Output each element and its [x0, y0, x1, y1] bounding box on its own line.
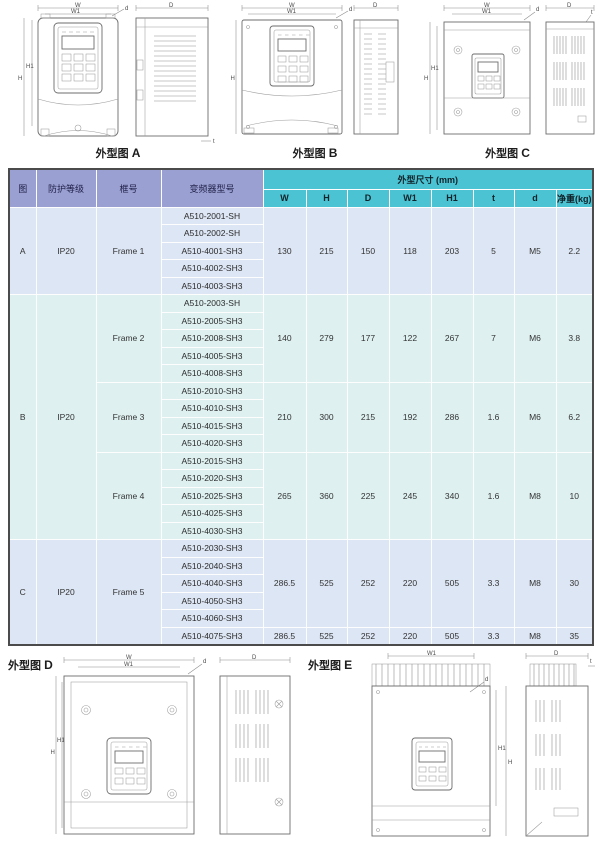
dim-value-cell-kg: 10: [556, 452, 593, 540]
dim-value-cell-kg: 3.8: [556, 295, 593, 383]
model-cell: A510-4030-SH3: [161, 522, 263, 540]
dim-value-cell-kg: 30: [556, 540, 593, 628]
dim-label-w1: W1: [124, 662, 134, 668]
dim-label-depth: D: [169, 3, 174, 9]
col-header-frame: 框号: [96, 169, 161, 207]
dim-value-cell-H: 525: [306, 540, 347, 628]
dim-label-w1: W1: [482, 9, 492, 15]
model-cell: A510-4040-SH3: [161, 575, 263, 593]
keypad: [412, 738, 452, 790]
dim-value-cell-D: 150: [347, 207, 389, 295]
model-cell: A510-4025-SH3: [161, 505, 263, 523]
frame-cell: Frame 5: [96, 540, 161, 645]
spec-table-header: 图 防护等级 框号 变频器型号 外型尺寸 (mm) W H D W1 H1 t …: [9, 169, 593, 207]
col-header-protection: 防护等级: [36, 169, 96, 207]
dim-value-cell-d: M6: [514, 295, 556, 383]
drawing-c-front-view: W W1 H H1 d: [424, 3, 539, 134]
drawing-caption-d: 外型图 D: [8, 657, 53, 673]
keypad: [270, 26, 314, 86]
page-root: { "drawings": { "caption_prefix": "外型图",…: [0, 0, 600, 844]
col-header-w1: W1: [389, 189, 431, 207]
dim-value-cell-W: 140: [263, 295, 306, 383]
dim-value-cell-H1: 267: [431, 295, 473, 383]
figure-cell: A: [9, 207, 36, 295]
dim-label-w1: W1: [427, 651, 437, 657]
figure-cell: B: [9, 295, 36, 540]
dim-value-cell-kg: 6.2: [556, 382, 593, 452]
model-cell: A510-4075-SH3: [161, 627, 263, 645]
protection-cell: IP20: [36, 295, 96, 540]
model-cell: A510-2005-SH3: [161, 312, 263, 330]
model-cell: A510-2040-SH3: [161, 557, 263, 575]
dim-value-cell-W1: 192: [389, 382, 431, 452]
outline-drawing-a: W W1 H H1 d D t: [8, 2, 228, 145]
model-cell: A510-2010-SH3: [161, 382, 263, 400]
keypad: [472, 54, 504, 98]
model-cell: A510-4001-SH3: [161, 242, 263, 260]
frame-cell: Frame 1: [96, 207, 161, 295]
model-cell: A510-4015-SH3: [161, 417, 263, 435]
dim-value-cell-H1: 505: [431, 627, 473, 645]
model-cell: A510-2015-SH3: [161, 452, 263, 470]
dim-value-cell-d: M6: [514, 382, 556, 452]
dim-label-depth: D: [554, 651, 559, 657]
col-header-model: 变频器型号: [161, 169, 263, 207]
frame-cell: Frame 2: [96, 295, 161, 383]
frame-cell: Frame 3: [96, 382, 161, 452]
dim-value-cell-H: 360: [306, 452, 347, 540]
drawing-caption-b: 外型图 B: [230, 145, 400, 161]
dim-value-cell-H1: 203: [431, 207, 473, 295]
dim-value-cell-H1: 505: [431, 540, 473, 628]
dim-value-cell-H1: 340: [431, 452, 473, 540]
model-cell: A510-2008-SH3: [161, 330, 263, 348]
outline-drawing-e: W1 d H1 H D t: [358, 650, 598, 842]
col-header-d: D: [347, 189, 389, 207]
model-cell: A510-4008-SH3: [161, 365, 263, 383]
drawing-d-side-view: D: [220, 655, 290, 834]
dim-label-hole: d: [485, 677, 488, 683]
outline-drawing-c: W W1 H H1 d D t: [420, 2, 595, 145]
dim-value-cell-W1: 122: [389, 295, 431, 383]
col-header-dimensions-group: 外型尺寸 (mm): [263, 169, 593, 189]
dim-value-cell-H1: 286: [431, 382, 473, 452]
drawing-b-side-view: D: [354, 3, 398, 134]
col-header-h: H: [306, 189, 347, 207]
spec-table: 图 防护等级 框号 变频器型号 外型尺寸 (mm) W H D W1 H1 t …: [8, 168, 594, 646]
dim-label-h: H: [51, 750, 55, 756]
keypad: [107, 738, 151, 794]
dim-value-cell-W1: 118: [389, 207, 431, 295]
dim-value-cell-W: 130: [263, 207, 306, 295]
dim-value-cell-t: 1.6: [473, 452, 514, 540]
dim-value-cell-W1: 220: [389, 540, 431, 628]
protection-cell: IP20: [36, 207, 96, 295]
drawing-caption-a: 外型图 A: [8, 145, 228, 161]
dim-label-h1: H1: [26, 64, 34, 70]
dim-value-cell-D: 225: [347, 452, 389, 540]
dim-value-cell-D: 252: [347, 627, 389, 645]
outline-drawing-b: W W1 H d D: [230, 2, 400, 145]
dim-value-cell-t: 7: [473, 295, 514, 383]
frame-cell: Frame 4: [96, 452, 161, 540]
dim-value-cell-H: 525: [306, 627, 347, 645]
dim-value-cell-W1: 245: [389, 452, 431, 540]
col-header-figure: 图: [9, 169, 36, 207]
model-cell: A510-2003-SH: [161, 295, 263, 313]
dim-label-t: t: [591, 10, 593, 16]
dim-label-depth: D: [567, 3, 572, 9]
drawing-b-front-view: W W1 H d: [231, 3, 353, 134]
drawing-e-front-view: W1 d H1 H: [372, 651, 512, 836]
col-header-w: W: [263, 189, 306, 207]
dim-value-cell-W1: 220: [389, 627, 431, 645]
model-cell: A510-4005-SH3: [161, 347, 263, 365]
model-cell: A510-4050-SH3: [161, 592, 263, 610]
col-header-weight: 净重(kg): [556, 189, 593, 207]
dim-value-cell-d: M8: [514, 540, 556, 628]
dim-value-cell-d: M8: [514, 452, 556, 540]
dim-value-cell-H: 215: [306, 207, 347, 295]
dim-value-cell-D: 177: [347, 295, 389, 383]
dim-value-cell-t: 5: [473, 207, 514, 295]
dim-label-h: H: [231, 76, 235, 82]
drawing-caption-e: 外型图 E: [308, 657, 352, 673]
dim-value-cell-kg: 2.2: [556, 207, 593, 295]
model-cell: A510-4060-SH3: [161, 610, 263, 628]
dim-value-cell-H: 279: [306, 295, 347, 383]
dim-label-hole: d: [536, 7, 539, 13]
model-cell: A510-4020-SH3: [161, 435, 263, 453]
dim-label-w1: W1: [71, 9, 81, 15]
dim-value-cell-W: 210: [263, 382, 306, 452]
model-cell: A510-4010-SH3: [161, 400, 263, 418]
drawing-a-front-view: W W1 H H1 d: [18, 3, 128, 136]
model-cell: A510-2030-SH3: [161, 540, 263, 558]
dim-value-cell-W: 265: [263, 452, 306, 540]
drawing-c-side-view: D t: [546, 3, 594, 134]
model-cell: A510-2020-SH3: [161, 470, 263, 488]
model-cell: A510-4002-SH3: [161, 260, 263, 278]
dim-label-depth: D: [252, 655, 257, 661]
drawing-a-side-view: D t: [136, 3, 215, 145]
dim-label-w1: W1: [287, 9, 297, 15]
drawing-d-front-view: W W1 H H1 d: [51, 655, 207, 834]
dim-value-cell-kg: 35: [556, 627, 593, 645]
dim-value-cell-d: M8: [514, 627, 556, 645]
dim-label-hole: d: [203, 659, 206, 665]
model-cell: A510-4003-SH3: [161, 277, 263, 295]
dim-label-t: t: [590, 659, 592, 665]
dim-label-h: H: [424, 76, 428, 82]
dim-label-hole: d: [349, 7, 352, 13]
dim-label-depth: D: [373, 3, 378, 9]
dim-value-cell-W: 286.5: [263, 540, 306, 628]
keypad: [54, 23, 102, 93]
dim-value-cell-t: 3.3: [473, 540, 514, 628]
protection-cell: IP20: [36, 540, 96, 645]
dim-label-h: H: [508, 760, 512, 766]
dim-label-h: H: [18, 76, 22, 82]
dim-value-cell-W: 286.5: [263, 627, 306, 645]
dim-value-cell-D: 215: [347, 382, 389, 452]
dim-value-cell-d: M5: [514, 207, 556, 295]
figure-cell: C: [9, 540, 36, 645]
model-cell: A510-2002-SH: [161, 225, 263, 243]
dim-label-w: W: [126, 655, 132, 661]
model-cell: A510-2025-SH3: [161, 487, 263, 505]
outline-drawing-d: W W1 H H1 d D: [50, 652, 300, 842]
dim-value-cell-D: 252: [347, 540, 389, 628]
model-cell: A510-2001-SH: [161, 207, 263, 225]
drawing-e-side-view: D t: [526, 651, 595, 836]
dim-label-h1: H1: [431, 66, 439, 72]
col-header-h1: H1: [431, 189, 473, 207]
dim-value-cell-t: 3.3: [473, 627, 514, 645]
dim-value-cell-H: 300: [306, 382, 347, 452]
spec-table-body: AIP20Frame 1A510-2001-SH1302151501182035…: [9, 207, 593, 645]
drawing-caption-c: 外型图 C: [420, 145, 595, 161]
col-header-t: t: [473, 189, 514, 207]
dim-label-hole: d: [125, 6, 128, 12]
dim-value-cell-t: 1.6: [473, 382, 514, 452]
col-header-hole-d: d: [514, 189, 556, 207]
dim-label-h1: H1: [498, 746, 506, 752]
